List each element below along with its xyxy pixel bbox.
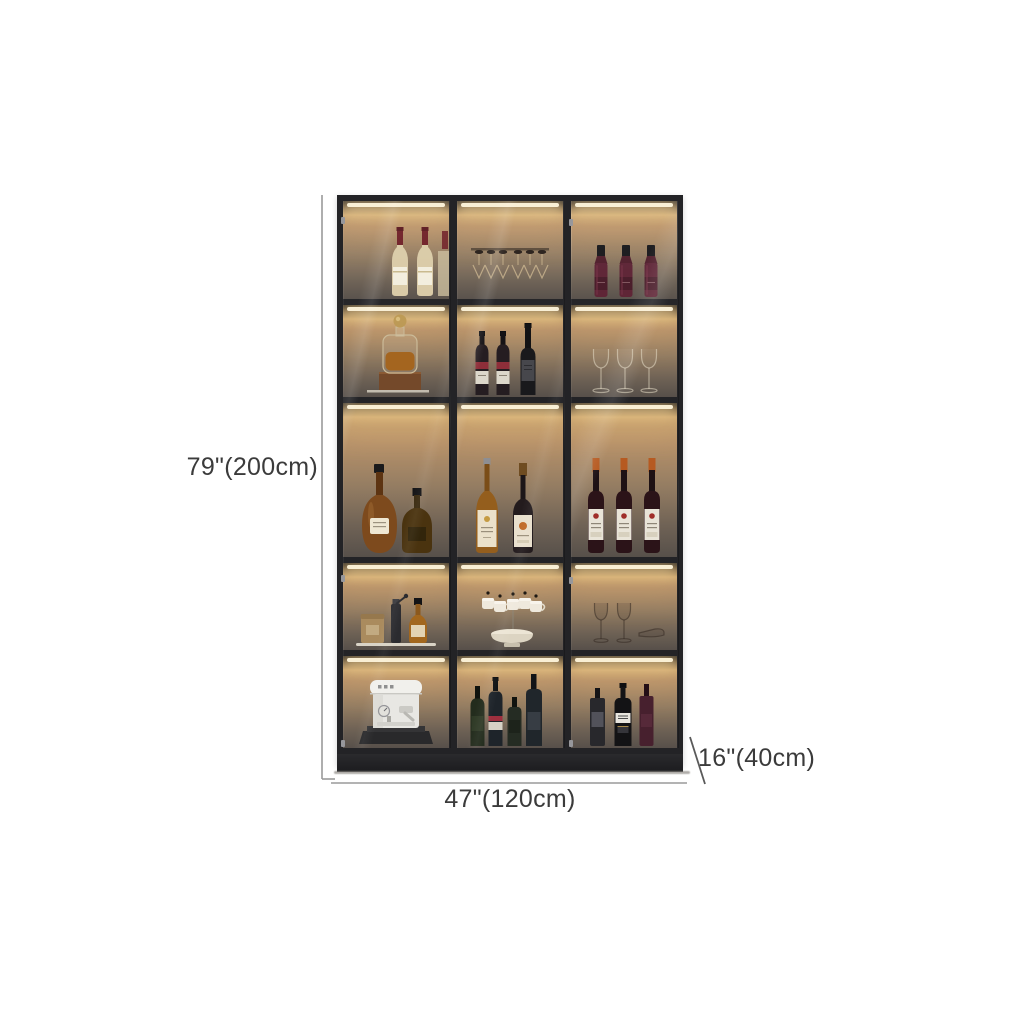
cabinet-cell-r4c1 xyxy=(343,563,449,650)
canister-grinder-whiskey-bottle xyxy=(343,563,449,650)
cabinet-base-plinth xyxy=(337,754,683,772)
product-dimension-image: 79"(200cm) 47"(120cm) 16"(40cm) xyxy=(0,0,1024,1024)
empty-wine-glasses xyxy=(571,305,677,397)
cabinet-cell-r1c2 xyxy=(457,201,563,299)
cabinet-cell-r3c3 xyxy=(571,403,677,557)
door-hinge xyxy=(341,575,345,582)
door-hinge xyxy=(341,217,345,224)
cognac-brandy-bottles xyxy=(343,403,449,557)
cabinet-cell-r5c2 xyxy=(457,656,563,748)
whiskey-decanter xyxy=(343,305,449,397)
shelf-row-1 xyxy=(343,201,677,299)
door-hinge xyxy=(341,740,345,747)
espresso-machine xyxy=(343,656,449,748)
red-wine-port-bottles xyxy=(457,305,563,397)
cabinet-cell-r1c1 xyxy=(343,201,449,299)
dark-spirit-bottles xyxy=(457,656,563,748)
cabinet-cell-r3c2 xyxy=(457,403,563,557)
cabinet-cell-r5c3 xyxy=(571,656,677,748)
height-dimension-label: 79"(200cm) xyxy=(140,455,318,480)
cabinet-cell-r2c2 xyxy=(457,305,563,397)
cabinet-cell-r2c3 xyxy=(571,305,677,397)
display-cabinet xyxy=(337,195,683,766)
cabinet-cell-r2c1 xyxy=(343,305,449,397)
hanging-stemware-glasses xyxy=(457,201,563,299)
red-wine-bottles-white-labels xyxy=(571,403,677,557)
cabinet-cell-r3c1 xyxy=(343,403,449,557)
mug-tree-with-mugs-and-bowl xyxy=(457,563,563,650)
cabinet-cell-r4c3 xyxy=(571,563,677,650)
shelf-row-5 xyxy=(343,656,677,748)
shelf-row-3 xyxy=(343,403,677,557)
cabinet-cell-r5c1 xyxy=(343,656,449,748)
shelf-row-2 xyxy=(343,305,677,397)
dark-red-liquor-bottles xyxy=(571,201,677,299)
faint-wine-glasses xyxy=(571,563,677,650)
shelf-row-4 xyxy=(343,563,677,650)
cabinet-cell-r4c2 xyxy=(457,563,563,650)
door-hinge xyxy=(569,577,573,584)
cabinet-cell-r1c3 xyxy=(571,201,677,299)
depth-dimension-label: 16"(40cm) xyxy=(698,746,815,771)
door-hinge xyxy=(569,740,573,747)
white-wine-bottles xyxy=(343,201,449,299)
whisky-bottles xyxy=(571,656,677,748)
labeled-wine-bottles xyxy=(457,403,563,557)
floor-shadow xyxy=(334,771,690,774)
door-hinge xyxy=(569,219,573,226)
width-dimension-label: 47"(120cm) xyxy=(410,787,610,812)
